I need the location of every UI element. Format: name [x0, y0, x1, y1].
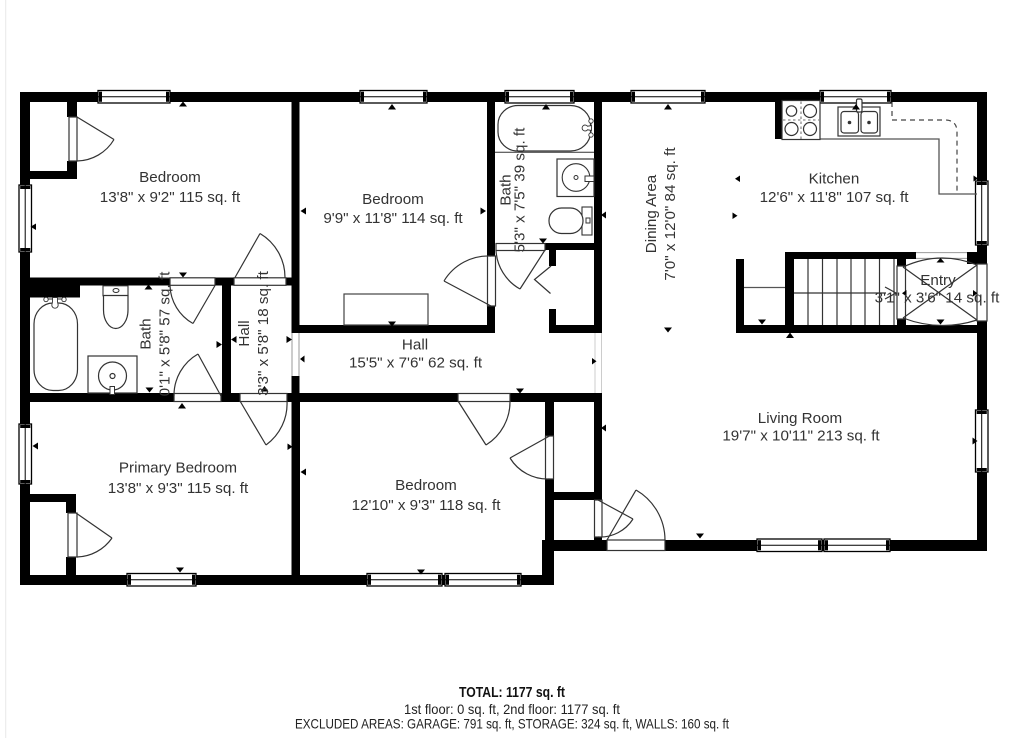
svg-text:19'7" x 10'11" 213 sq. ft: 19'7" x 10'11" 213 sq. ft	[722, 428, 880, 445]
svg-text:3'1" x 3'6" 14 sq. ft: 3'1" x 3'6" 14 sq. ft	[875, 290, 1000, 307]
svg-text:Kitchen: Kitchen	[809, 171, 860, 188]
svg-text:Living Room: Living Room	[758, 410, 842, 427]
svg-text:TOTAL: 1177 sq. ft: TOTAL: 1177 sq. ft	[459, 685, 565, 701]
svg-text:Bedroom: Bedroom	[139, 169, 201, 186]
svg-text:3'3" x 5'8" 18 sq. ft: 3'3" x 5'8" 18 sq. ft	[255, 270, 272, 395]
svg-text:Hall: Hall	[236, 320, 253, 346]
svg-text:12'6" x 11'8" 107 sq. ft: 12'6" x 11'8" 107 sq. ft	[760, 189, 910, 206]
svg-text:0'1" x 5'8" 57 sq. ft: 0'1" x 5'8" 57 sq. ft	[157, 271, 174, 396]
svg-text:13'8" x 9'3" 115 sq. ft: 13'8" x 9'3" 115 sq. ft	[108, 480, 249, 497]
svg-text:7'0" x 12'0" 84 sq. ft: 7'0" x 12'0" 84 sq. ft	[662, 147, 679, 281]
svg-text:13'8" x 9'2" 115 sq. ft: 13'8" x 9'2" 115 sq. ft	[100, 189, 241, 206]
svg-text:Bedroom: Bedroom	[362, 191, 424, 208]
svg-text:EXCLUDED AREAS: GARAGE: 791 sq: EXCLUDED AREAS: GARAGE: 791 sq. ft, STOR…	[295, 717, 729, 732]
svg-text:Bedroom: Bedroom	[395, 477, 457, 494]
svg-text:Primary Bedroom: Primary Bedroom	[119, 460, 237, 477]
svg-text:Hall: Hall	[402, 337, 428, 354]
svg-text:Bath: Bath	[138, 318, 155, 349]
svg-text:12'10" x 9'3" 118 sq. ft: 12'10" x 9'3" 118 sq. ft	[352, 497, 502, 514]
svg-text:9'9" x 11'8" 114 sq. ft: 9'9" x 11'8" 114 sq. ft	[323, 210, 463, 227]
svg-text:1st floor: 0 sq. ft, 2nd floor: 1st floor: 0 sq. ft, 2nd floor: 1177 sq.…	[404, 702, 620, 717]
svg-text:Entry: Entry	[920, 272, 956, 289]
svg-text:Dining Area: Dining Area	[643, 174, 660, 253]
svg-text:15'5" x 7'6" 62 sq. ft: 15'5" x 7'6" 62 sq. ft	[349, 355, 483, 372]
svg-text:5'3" x 7'5" 39 sq. ft: 5'3" x 7'5" 39 sq. ft	[512, 127, 529, 252]
